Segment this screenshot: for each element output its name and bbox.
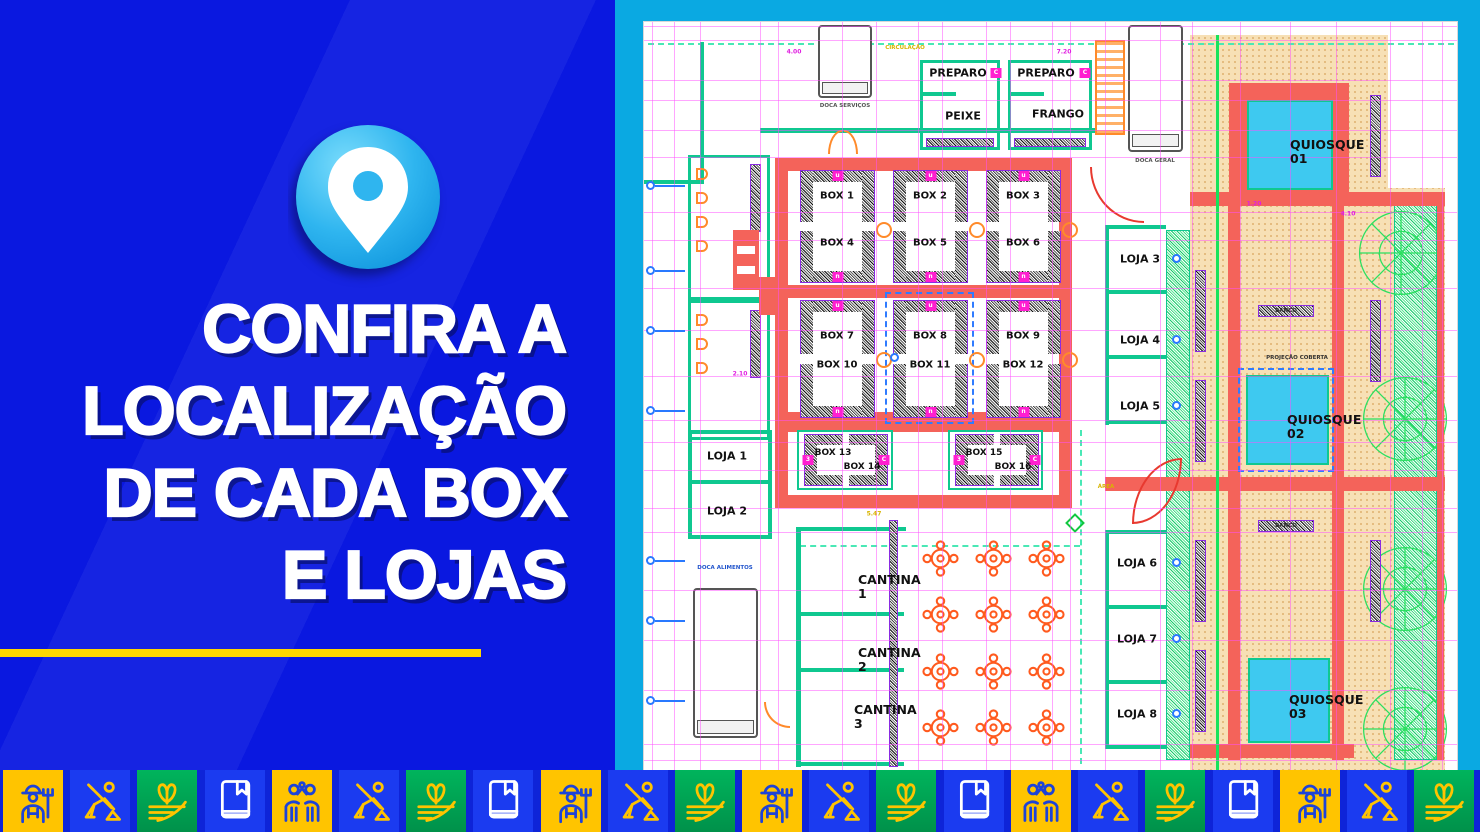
box-door-tag: n <box>925 272 936 282</box>
book-icon <box>480 778 526 824</box>
strip-cell <box>944 770 1004 832</box>
wall-gap <box>737 246 755 254</box>
box-label: BOX 14 <box>844 462 881 472</box>
dim-line <box>644 590 1457 591</box>
headline-line-4: E LOJAS <box>82 534 566 616</box>
plant-icon <box>1152 778 1198 824</box>
section-marker <box>646 406 655 415</box>
table-icon <box>922 653 959 690</box>
door-arc <box>828 130 842 154</box>
structural-line <box>1216 35 1219 772</box>
wall <box>775 412 788 508</box>
section-marker-line <box>655 185 685 187</box>
table-icon <box>975 596 1012 633</box>
loja-label: LOJA 3 <box>1120 253 1160 266</box>
dim-line <box>1070 22 1071 772</box>
dim-line <box>644 100 1457 101</box>
bench <box>1370 300 1381 382</box>
wall <box>796 762 904 766</box>
dock-truck <box>693 588 758 738</box>
section-marker <box>646 616 655 625</box>
kiosk-word: QUIOSQUE <box>1287 413 1361 427</box>
table-icon <box>922 709 959 746</box>
dim-line <box>644 640 1457 641</box>
dim-line <box>644 330 1457 331</box>
dim-text: 7.20 <box>1057 49 1072 56</box>
box-door-tag: u <box>1018 301 1029 311</box>
wall <box>796 668 904 672</box>
box-door-tag: 3 <box>954 455 965 465</box>
section-marker <box>1172 401 1181 410</box>
dim-text: 4.10 <box>1341 211 1356 218</box>
strip-cell <box>272 770 332 832</box>
headline-line-3: DE CADA BOX <box>82 452 566 534</box>
wall <box>688 430 692 539</box>
cantina-number: 1 <box>858 587 867 601</box>
section-marker <box>646 181 655 190</box>
kiosk-word: QUIOSQUE <box>1290 138 1364 152</box>
box-unit: u n <box>893 170 968 283</box>
dim-line <box>644 288 1457 289</box>
truck-cab <box>822 82 868 94</box>
strip-cell <box>3 770 63 832</box>
table-icon <box>1028 596 1065 633</box>
section-marker <box>1172 558 1181 567</box>
wall <box>768 430 772 539</box>
worker-icon <box>816 778 862 824</box>
bench <box>1195 540 1206 622</box>
strip-cell <box>1213 770 1273 832</box>
loja-label: LOJA 6 <box>1117 557 1157 570</box>
dock-truck <box>1128 25 1183 152</box>
worker-icon <box>615 778 661 824</box>
headline-line-1: CONFIRA A <box>82 288 566 370</box>
table-icon <box>922 596 959 633</box>
strip-cell <box>608 770 668 832</box>
strip-cell <box>70 770 130 832</box>
strip-cell <box>876 770 936 832</box>
box-door-tag: n <box>925 407 936 417</box>
strip-cell <box>137 770 197 832</box>
dim-line <box>644 130 1457 131</box>
cantina-word: CANTINA <box>854 703 917 717</box>
book-icon <box>1220 778 1266 824</box>
dim-line <box>1290 22 1291 772</box>
strip-cell <box>1347 770 1407 832</box>
dim-line <box>778 22 779 772</box>
wall <box>1105 290 1166 294</box>
dim-line <box>652 22 653 772</box>
farmer-icon <box>10 778 56 824</box>
dim-line <box>644 744 1457 745</box>
box-unit: u n <box>986 170 1061 283</box>
cantina-word: CANTINA <box>858 646 921 660</box>
wall <box>1190 744 1354 758</box>
wall <box>1105 745 1166 749</box>
strip-cell <box>1280 770 1340 832</box>
section-marker-line <box>655 330 685 332</box>
dock-label: DOCA GERAL <box>1135 158 1175 164</box>
toilet-fixture <box>696 240 708 252</box>
dim-line <box>986 22 987 772</box>
bench-label: BANCO <box>1275 308 1297 314</box>
dock-label: DOCA SERVIÇOS <box>820 103 870 109</box>
worker-icon <box>1354 778 1400 824</box>
plant-icon <box>682 778 728 824</box>
strip-cell <box>406 770 466 832</box>
couple-icon <box>1018 778 1064 824</box>
farmer-icon <box>1287 778 1333 824</box>
box-label: BOX 10 <box>817 360 858 371</box>
table-icon <box>922 540 959 577</box>
dim-line <box>1442 22 1443 772</box>
box-label: BOX 4 <box>820 238 854 249</box>
door-arc <box>764 702 790 728</box>
loja-label: LOJA 4 <box>1120 334 1160 347</box>
box-label: BOX 2 <box>913 191 947 202</box>
door-arc <box>969 222 985 238</box>
dim-line <box>644 240 1457 241</box>
strip-cell <box>809 770 869 832</box>
headline-line-2: LOCALIZAÇÃO <box>82 370 566 452</box>
room-label: PEIXE <box>945 110 981 123</box>
box-label: BOX 15 <box>966 448 1003 458</box>
plant-icon <box>144 778 190 824</box>
door-arc <box>1090 167 1144 223</box>
room-label: PREPARO <box>1017 67 1074 80</box>
promo-panel: CONFIRA A LOCALIZAÇÃO DE CADA BOX E LOJA… <box>0 0 615 770</box>
dock-label: DOCA ALIMENTOS <box>697 565 752 571</box>
toilet-fixture <box>696 216 708 228</box>
floor-plan: u n u n u n u n u n u n 3 C <box>644 22 1457 772</box>
dim-line <box>644 376 1457 377</box>
book-icon <box>951 778 997 824</box>
dim-line <box>760 22 761 772</box>
strip-cell <box>675 770 735 832</box>
section-marker <box>646 266 655 275</box>
footer-icon-strip <box>0 770 1480 832</box>
door-arc <box>876 222 892 238</box>
toilet-fixture <box>696 338 708 350</box>
wall <box>733 230 759 290</box>
section-marker <box>1172 634 1181 643</box>
area-label: ÁREA <box>1098 484 1115 490</box>
cantina-word: CANTINA <box>858 573 921 587</box>
dim-line <box>1422 22 1423 772</box>
dim-line <box>1010 22 1011 772</box>
box-label: BOX 9 <box>1006 331 1040 342</box>
section-marker <box>1172 335 1181 344</box>
counter <box>889 520 898 767</box>
farmer-icon <box>548 778 594 824</box>
dim-line <box>644 26 1457 27</box>
counter <box>926 138 994 147</box>
toilet-fixture <box>696 314 708 326</box>
box-label: BOX 12 <box>1003 360 1044 371</box>
cantina-number: 3 <box>854 717 863 731</box>
strip-cell <box>541 770 601 832</box>
table-icon <box>975 653 1012 690</box>
box-label: BOX 5 <box>913 238 947 249</box>
table-icon <box>975 709 1012 746</box>
box-label: BOX 6 <box>1006 238 1040 249</box>
worker-icon <box>1085 778 1131 824</box>
box-label: BOX 1 <box>820 191 854 202</box>
dashed-guide-line <box>648 43 1454 45</box>
worker-icon <box>77 778 123 824</box>
dim-line <box>644 760 1457 761</box>
accent-underline <box>0 649 481 657</box>
wall-gap <box>737 266 755 274</box>
dim-line <box>644 470 1457 471</box>
truck-cab <box>697 720 754 734</box>
dim-line <box>1160 22 1161 772</box>
section-marker <box>890 353 899 362</box>
tree-icon <box>1356 208 1446 298</box>
worker-icon <box>346 778 392 824</box>
box-label: BOX 16 <box>995 462 1032 472</box>
dim-line <box>700 22 701 772</box>
room-label: FRANGO <box>1032 108 1084 121</box>
headline: CONFIRA A LOCALIZAÇÃO DE CADA BOX E LOJA… <box>82 288 566 616</box>
dim-line <box>1390 22 1391 772</box>
strip-cell <box>1078 770 1138 832</box>
kiosk-word: QUIOSQUE <box>1289 693 1363 707</box>
bench <box>1195 380 1206 462</box>
box-label: BOX 11 <box>910 360 951 371</box>
toilet-fixture <box>696 362 708 374</box>
dim-line <box>1192 22 1193 772</box>
loja-label: LOJA 8 <box>1117 708 1157 721</box>
box-door-tag: 3 <box>803 455 814 465</box>
bench-label: BANCO <box>1275 523 1297 529</box>
bench <box>1195 650 1206 732</box>
area-label: CIRCULAÇÃO <box>885 45 925 51</box>
loja-label: LOJA 2 <box>707 505 747 518</box>
truck-cab <box>1132 134 1179 147</box>
wall <box>796 612 904 616</box>
dim-line <box>644 532 1457 533</box>
table-icon <box>1028 540 1065 577</box>
wall <box>920 92 956 96</box>
loja-label: LOJA 5 <box>1120 400 1160 413</box>
section-marker-line <box>655 700 685 702</box>
strip-cell <box>1145 770 1205 832</box>
door-arc <box>844 130 858 154</box>
dim-line <box>942 22 943 772</box>
dim-line <box>674 22 675 772</box>
plant-icon <box>1421 778 1467 824</box>
farmer-icon <box>749 778 795 824</box>
plant-icon <box>413 778 459 824</box>
room-label: PREPARO <box>929 67 986 80</box>
box-door-tag: u <box>925 301 936 311</box>
book-icon <box>212 778 258 824</box>
section-marker-line <box>655 270 685 272</box>
dim-text: 2.10 <box>733 371 748 378</box>
dim-line <box>644 442 1457 443</box>
strip-cell <box>1414 770 1474 832</box>
section-marker <box>646 326 655 335</box>
wall <box>796 527 801 767</box>
box-door-tag: u <box>925 171 936 181</box>
kiosk-number: 03 <box>1289 707 1306 721</box>
bench <box>1370 540 1381 622</box>
dim-text: 5.47 <box>867 511 882 518</box>
bench <box>1370 95 1381 177</box>
location-pin-icon <box>288 106 448 292</box>
dim-line <box>644 157 1457 158</box>
dim-line <box>842 22 843 772</box>
dim-line <box>1052 22 1053 772</box>
dim-line <box>1336 22 1337 772</box>
loja-label: LOJA 7 <box>1117 633 1157 646</box>
section-marker <box>646 696 655 705</box>
wall <box>1105 355 1166 359</box>
section-marker <box>1172 709 1181 718</box>
plant-icon <box>883 778 929 824</box>
wall <box>759 277 779 315</box>
box-label: BOX 3 <box>1006 191 1040 202</box>
box-label: BOX 13 <box>815 448 852 458</box>
toilet-fixture <box>696 168 708 180</box>
strip-cell <box>742 770 802 832</box>
strip-cell <box>1011 770 1071 832</box>
bench <box>1195 270 1206 352</box>
cantina-number: 2 <box>858 660 867 674</box>
section-marker <box>1172 254 1181 263</box>
dim-line <box>644 508 1457 509</box>
dim-line <box>644 212 1457 213</box>
kiosk-number: 02 <box>1287 427 1304 441</box>
strip-cell <box>205 770 265 832</box>
section-marker <box>646 556 655 565</box>
wall <box>1008 92 1044 96</box>
dim-line <box>1240 22 1241 772</box>
area-label: PROJEÇÃO COBERTA <box>1266 355 1328 361</box>
strip-cell <box>339 770 399 832</box>
counter <box>1014 138 1086 147</box>
prep-tag: C <box>991 68 1002 78</box>
prep-tag: C <box>1080 68 1091 78</box>
box-door-tag: n <box>1018 407 1029 417</box>
dim-line <box>1105 22 1106 772</box>
dim-text: 4.00 <box>787 49 802 56</box>
kiosk-number: 01 <box>1290 152 1307 166</box>
dashed-guide-line <box>1080 430 1082 764</box>
box-label: BOX 7 <box>820 331 854 342</box>
toilet-fixture <box>696 192 708 204</box>
wall <box>1105 605 1166 609</box>
box-label: BOX 8 <box>913 331 947 342</box>
table-icon <box>975 540 1012 577</box>
loja-label: LOJA 1 <box>707 450 747 463</box>
table-icon <box>1028 709 1065 746</box>
wall <box>1105 680 1166 684</box>
couple-icon <box>279 778 325 824</box>
wall <box>1105 225 1166 229</box>
stairs <box>1095 40 1125 135</box>
box-door-tag: n <box>1018 272 1029 282</box>
section-marker-line <box>655 410 685 412</box>
wall <box>775 495 1072 508</box>
box-unit: u n <box>800 170 875 283</box>
dim-line <box>644 80 1457 81</box>
section-marker-line <box>655 560 685 562</box>
box-door-tag: u <box>1018 171 1029 181</box>
strip-cell <box>473 770 533 832</box>
dim-text: 1.20 <box>1247 201 1262 208</box>
section-marker-line <box>655 620 685 622</box>
table-icon <box>1028 653 1065 690</box>
dim-line <box>644 40 1457 41</box>
door-arc <box>969 352 985 368</box>
